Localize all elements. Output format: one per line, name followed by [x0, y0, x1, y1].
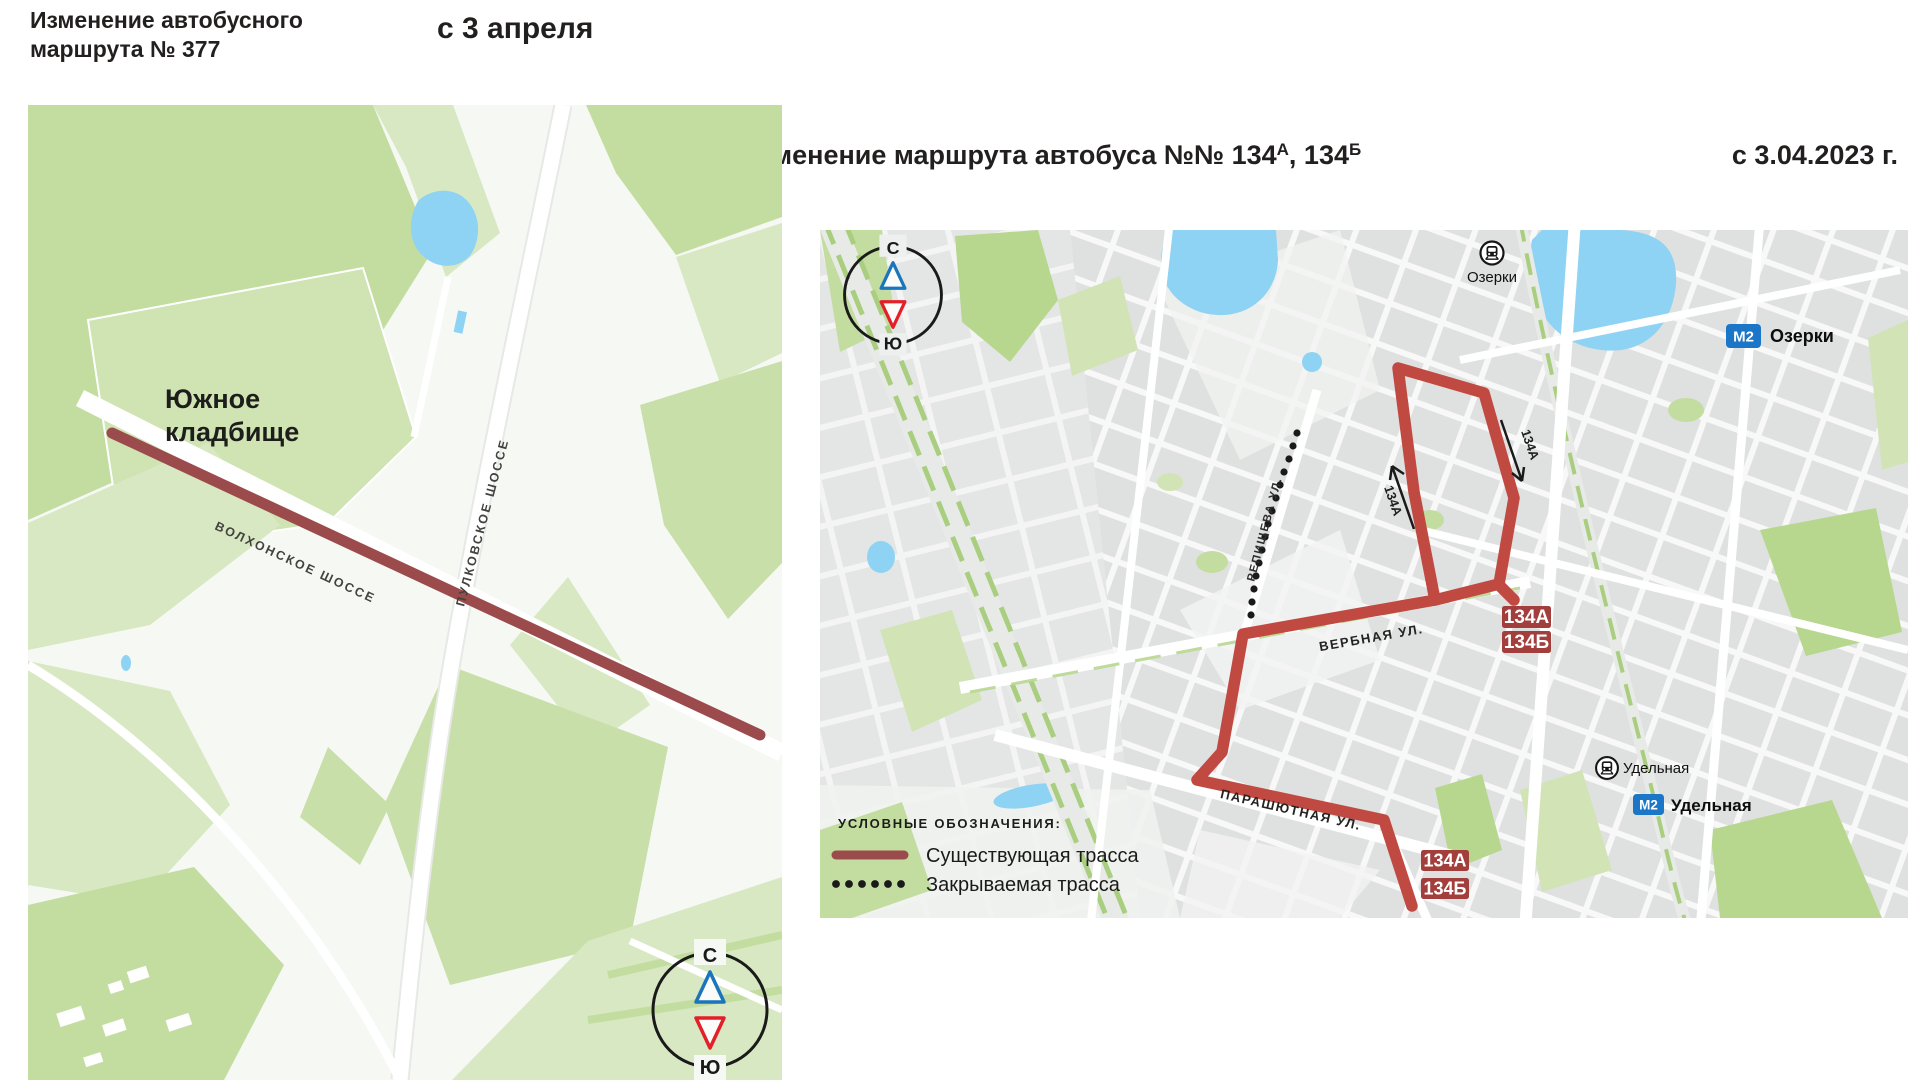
- compass-south-label: Ю: [884, 333, 902, 353]
- right-map: РЕПИЩЕВА УЛ. 134А 134А ВЕРБНАЯ УЛ. ПАРАШ…: [820, 230, 1908, 918]
- left-title-line1: Изменение автобусного: [30, 6, 303, 35]
- right-effective-date: с 3.04.2023 г.: [1732, 140, 1898, 171]
- legend-existing-label: Существующая трасса: [926, 845, 1140, 867]
- compass-north-label: С: [703, 945, 717, 967]
- place-label-line1: Южное: [165, 384, 260, 414]
- badge-134a-bottom: 134А: [1423, 851, 1466, 871]
- left-effective-date: с 3 апреля: [437, 12, 593, 46]
- legend-title: УСЛОВНЫЕ ОБОЗНАЧЕНИЯ:: [838, 816, 1062, 831]
- left-title: Изменение автобусного маршрута № 377: [30, 6, 303, 64]
- metro-station-udelnaya: М2 Удельная: [1633, 794, 1752, 815]
- badge-134a: 134А: [1504, 607, 1550, 628]
- left-map-svg: Южное кладбище ВОЛХОНСКОЕ ШОССЕ ПУЛКОВСК…: [28, 105, 782, 1080]
- left-title-line2: маршрута № 377: [30, 35, 303, 64]
- badge-134b: 134Б: [1504, 632, 1549, 653]
- rail-station-udelnaya: Удельная: [1596, 757, 1689, 779]
- right-title-separator: , 134: [1289, 140, 1349, 170]
- rail-udelnaya-label: Удельная: [1623, 760, 1689, 777]
- right-title-sup-a: А: [1277, 140, 1289, 159]
- place-label-line2: кладбище: [165, 417, 299, 447]
- metro-ozerki-label: Озерки: [1770, 326, 1834, 346]
- rail-ozerki-label: Озерки: [1467, 269, 1517, 286]
- badge-134b-bottom: 134Б: [1424, 879, 1467, 899]
- left-map-greenery: [28, 105, 782, 1080]
- right-map-svg: РЕПИЩЕВА УЛ. 134А 134А ВЕРБНАЯ УЛ. ПАРАШ…: [820, 230, 1908, 918]
- right-title-sup-b: Б: [1349, 140, 1361, 159]
- metro-m2-badge-label: М2: [1639, 798, 1658, 813]
- left-map: Южное кладбище ВОЛХОНСКОЕ ШОССЕ ПУЛКОВСК…: [28, 105, 782, 1080]
- right-title-main: Изменение маршрута автобуса №№ 134: [740, 140, 1277, 170]
- right-header: Изменение маршрута автобуса №№ 134А, 134…: [740, 140, 1898, 171]
- compass-north-label: С: [887, 238, 900, 258]
- metro-m2-badge-label: М2: [1733, 329, 1754, 346]
- metro-station-ozerki: М2 Озерки: [1726, 324, 1834, 348]
- right-title: Изменение маршрута автобуса №№ 134А, 134…: [740, 140, 1361, 171]
- legend-closing-label: Закрываемая трасса: [926, 874, 1121, 896]
- poster: Изменение автобусного маршрута № 377 с 3…: [0, 0, 1920, 1080]
- compass-south-label: Ю: [700, 1057, 721, 1079]
- metro-udelnaya-label: Удельная: [1671, 796, 1752, 815]
